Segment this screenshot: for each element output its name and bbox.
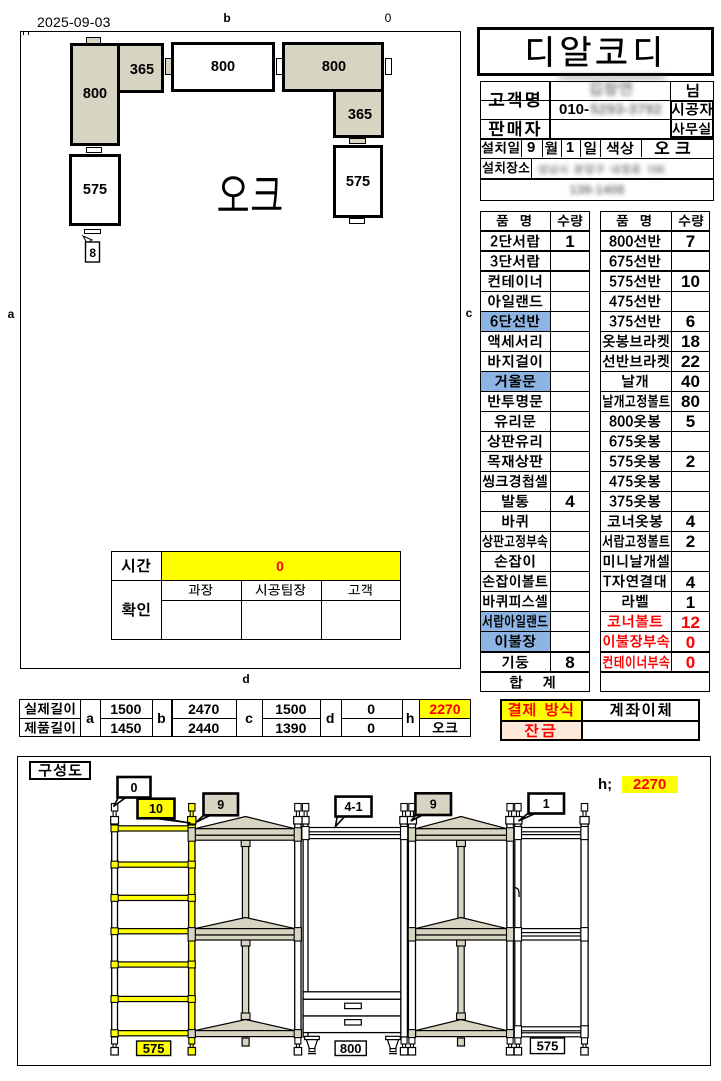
- svg-text:575: 575: [143, 1041, 165, 1056]
- svg-text:4-1: 4-1: [344, 800, 362, 814]
- svg-text:575: 575: [537, 1039, 559, 1054]
- svg-text:9: 9: [430, 798, 437, 812]
- svg-text:0: 0: [131, 781, 138, 795]
- svg-text:800: 800: [340, 1041, 362, 1056]
- svg-text:10: 10: [149, 802, 163, 816]
- svg-text:9: 9: [217, 798, 224, 812]
- svg-text:1: 1: [543, 797, 550, 811]
